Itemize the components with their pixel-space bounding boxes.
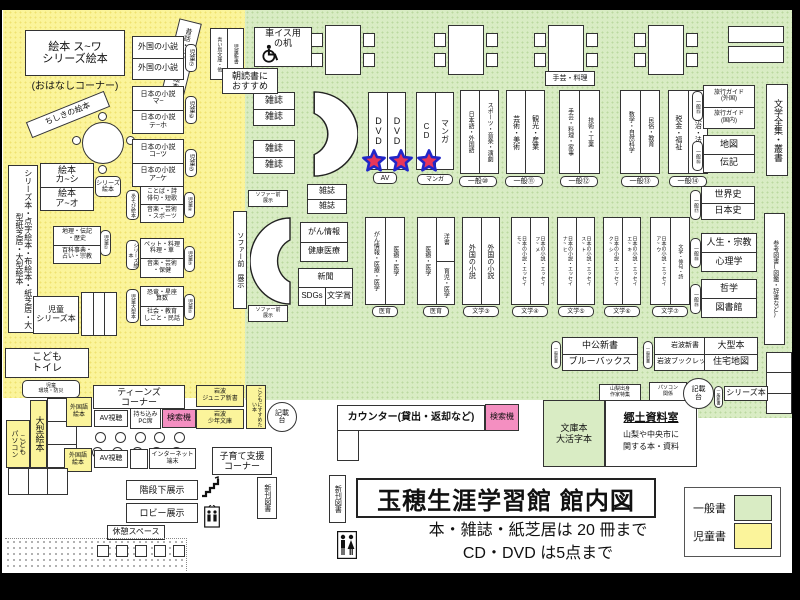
shelf-cell (9, 469, 28, 494)
geography-biography-shelf: 地理・伝記 ・歴史百科事典・ 占い・宗教 (53, 226, 101, 264)
cell: 洋書 (437, 218, 455, 261)
kids-env-tag: 児童 環境・防災 (22, 380, 80, 398)
cell: 芸術・美術 (507, 91, 525, 173)
chair (95, 432, 106, 443)
general-shelf-11: 芸術・美術観光・産業 (506, 90, 545, 174)
morning-reading-box: 朝読書に おすすめ (222, 68, 278, 94)
kids-large-books-tag: 児童大型本 (126, 289, 139, 323)
cell: 日本の小説・エッセイ ア~ウ (651, 218, 670, 304)
shelf-column: 医療・医学 (418, 218, 436, 304)
shelf-column: 手芸・料理・家事 (560, 91, 579, 173)
shelf-row: 音楽・芸術 ・スポーツ (141, 204, 183, 222)
box-label: AV視聴 (95, 451, 127, 467)
cell: 医療・医学 (386, 218, 405, 304)
newspaper-shelf: 新聞SDGs文学賞 (298, 268, 353, 306)
shelf-column: 日本語・外国語 (461, 91, 479, 173)
sofa-front-strip: ソファー前 展示 (233, 211, 247, 309)
kids-toilet: こども トイレ (5, 348, 89, 378)
shelf-row: 心理学 (702, 252, 756, 271)
shelf-row: 絵本 カ~シ (41, 164, 93, 187)
literature-collection-strip: 文学全集・叢書 (766, 84, 788, 176)
cell: 外国の小説 (133, 59, 183, 80)
new-books-strip-2: 新刊図書 (329, 475, 346, 523)
round-table-chair-bottom (98, 165, 107, 174)
cell: 雑誌 (254, 141, 294, 157)
shelf-row: 世界史 (702, 187, 754, 203)
search-terminal-counter: 検索機 (485, 404, 519, 431)
stairs-icon (200, 476, 220, 498)
cell: 日本の小説・エッセイ モ~ (512, 218, 530, 304)
chair (434, 33, 446, 47)
cell: 日本史 (702, 204, 754, 220)
shelf-row: 日本の小説 コ~ツ (133, 140, 183, 163)
cell: 人生・宗教 (702, 234, 756, 252)
chair (363, 53, 375, 67)
legend-label-general: 一般書 (693, 500, 726, 516)
kids-tag-2: 児童② (184, 294, 195, 320)
table (448, 25, 484, 75)
kodomo-susume-strip: こどもにすすめたい本 (246, 385, 266, 429)
shelf-column: 民俗・教育 (640, 91, 660, 173)
shelf-row: 新聞 (299, 269, 352, 287)
legend-row-children: 児童書 (693, 523, 772, 549)
library-floor-map: 昔話・シリーズ絵本絵本 ス~ワ シリーズ絵本(おはなしコーナー)ちしきの絵本外国… (0, 0, 800, 600)
cell: 日本語・外国語 (461, 91, 479, 173)
cell: 絵本 ア~オ (41, 188, 93, 211)
legend-swatch-children (734, 523, 772, 549)
wc-icon (337, 531, 357, 559)
shelf-row: 雑誌 (308, 199, 346, 214)
medical-shelf-1: がん情報・医療・医学医療・医学 (365, 217, 405, 305)
pc-related-box: パソコン 関係 (649, 382, 687, 402)
shelf-row: ことば・詩 俳句・短歌 (141, 187, 183, 204)
cell: 雑誌 (254, 93, 294, 109)
table (648, 25, 684, 75)
bunko-large-print-box: 文庫本 大活字本 (543, 400, 605, 467)
search-terminal-left: 検索機 (162, 409, 196, 428)
kids-tag-3: 児童③ (184, 246, 195, 272)
chair (174, 432, 185, 443)
chair (686, 53, 698, 67)
literature-tag-4: 文学④ (512, 306, 548, 317)
box-label: 岩波 少年文庫 (197, 410, 243, 428)
table-block-sw (8, 468, 68, 495)
shelf-row: 雑誌 (254, 157, 294, 174)
map-biography-shelf: 地図伝記 (703, 135, 755, 173)
shelf-row: 地図 (704, 136, 754, 154)
picturebook-ka-shi-shelf: 絵本 カ~シ絵本 ア~オ (40, 163, 94, 211)
round-table (82, 122, 124, 164)
chair (586, 33, 598, 47)
shelf-row: ブルーバックス (563, 354, 637, 371)
counter: カウンター(貸出・返却など) (337, 405, 485, 431)
cell: 雑誌 (254, 110, 294, 126)
box-label: 朝読書に おすすめ (223, 69, 277, 93)
shelf-row: 日本史 (702, 203, 754, 220)
chuko-shinsho-shelf: 中公新書ブルーバックス (562, 337, 638, 371)
chair (116, 545, 128, 557)
medical-tag-1: 医育 (372, 306, 398, 317)
shelf-cell (767, 393, 791, 413)
box-label: パソコン 関係 (650, 383, 686, 401)
cell: 医療・医学 (418, 218, 436, 304)
crafts-cooking-label: 手芸・料理 (545, 71, 595, 86)
chair (97, 545, 109, 557)
reading-table-2 (434, 25, 496, 73)
box-label: 階段下展示 (127, 481, 197, 499)
cell: 住宅地図 (705, 355, 757, 371)
cell: 哲学 (702, 280, 756, 298)
jnovel-kids-ma-shelf: 日本の小説 マ~日本の小説 テ~ホ (132, 86, 184, 134)
series-ehon-tag-2: シリーズ絵本 (126, 240, 139, 270)
chair (434, 53, 446, 67)
shelf-column: 外国の小説 (481, 218, 500, 304)
star-2 (388, 148, 414, 174)
shelf-column: 日本の小説・エッセイ ク~シ (604, 218, 622, 304)
shelf-column: がん情報・医療・医学 (366, 218, 385, 304)
literature-tag-5: 文学⑤ (558, 306, 594, 317)
literature-tag-7: 文学⑦ (652, 306, 688, 317)
medical-shelf-2: 医療・医学洋書育児・医学 (417, 217, 455, 305)
box-label: 検索機 (486, 405, 518, 430)
sofa-front-tag-top: ソファー前 展示 (248, 190, 288, 207)
stairs-display: 階段下展示 (126, 480, 198, 500)
pc-chairs-row-1 (95, 432, 185, 441)
box-label (338, 431, 358, 460)
lending-rule-av: CD・DVD は5点まで (408, 543, 668, 565)
shelf-cell (82, 293, 93, 335)
chair (311, 33, 323, 47)
shelf-row: 地理・伝記 ・歴史 (54, 227, 100, 245)
round-table-chair-top (98, 112, 107, 121)
shelf-column: 日本の小説・エッセイ ア~ウ (651, 218, 670, 304)
kyodo-heading: 郷土資料室 (606, 401, 696, 425)
shelf-column: 日本の小説・エッセイ ナ~ヒ (558, 218, 576, 304)
reading-table-3 (534, 25, 596, 73)
chair (686, 33, 698, 47)
dinosaur-science-shelf: 恐竜・星座 算数社会・教育 しごと・民話 (140, 286, 184, 326)
shelf-row: ペット・料理 料理・車 (141, 239, 183, 258)
cell: 外国の小説 (463, 218, 481, 304)
kotoba-poetry-shelf: ことば・詩 俳句・短歌音楽・芸術 ・スポーツ (140, 186, 184, 223)
shelf-column: 日本の小説・エッセイ エ~キ (622, 218, 641, 304)
shelf-row: 図書館 (702, 298, 756, 317)
table (325, 25, 361, 75)
lobby-display: ロビー展示 (126, 503, 198, 523)
series-books-label: シリーズ本 (724, 386, 768, 401)
cell: 雑誌 (308, 185, 346, 199)
box-label: AV視聴 (95, 411, 127, 426)
shelf-row: 恐竜・星座 算数 (141, 287, 183, 306)
general-shinsho-tag-3: 一般新書 (714, 386, 723, 408)
legend-label-children: 児童書 (693, 528, 726, 544)
cell: 図書館 (702, 299, 756, 317)
box-label: ソファー前 展示 (249, 191, 287, 206)
lending-rule-books: 本・雑誌・紙芝居は 20 冊まで (408, 520, 668, 542)
shelf-row: 社会・教育 しごと・民話 (141, 306, 183, 326)
box-label (131, 450, 147, 468)
iwanami-shonen-shelf: 岩波 少年文庫 (196, 409, 244, 429)
shelf-row: 健康医療 (301, 242, 347, 262)
kosodate-corner: 子育て支援 コーナー (212, 447, 272, 475)
box-label: 絵本 ス~ワ シリーズ絵本 (26, 31, 124, 75)
cell: 社会・教育 しごと・民話 (141, 307, 183, 326)
cell: ペット・料理 料理・車 (141, 239, 183, 258)
cell: 日本の小説・エッセイ ク~シ (604, 218, 622, 304)
kisaidai-right: 記載 台 (683, 378, 714, 409)
reading-table-4 (634, 25, 696, 73)
new-books-strip-1: 新刊図書 (257, 477, 277, 519)
shelf-row: SDGs文学賞 (299, 287, 352, 306)
shelf-cell (28, 469, 48, 494)
chair (311, 53, 323, 67)
cell: 技術・工業 (580, 91, 599, 173)
life-religion-shelf: 人生・宗教心理学 (701, 233, 757, 272)
internet-terminal: インターネット 端末 (149, 448, 196, 469)
shelf-row: 絵本 ア~オ (41, 187, 93, 211)
ohanashi-corner-label: (おはなしコーナー) (14, 79, 136, 93)
shelf-row: 日本の小説 ア~ケ (133, 163, 183, 187)
asobi-ehon-tag: あそび絵本 (126, 190, 139, 220)
rest-chairs (97, 545, 185, 555)
box-label: ティーンズ コーナー (94, 386, 184, 408)
jnovel-na-shelf: 日本の小説・エッセイ ナ~ヒ日本の小説・エッセイ ス~ト (557, 217, 595, 305)
shelf-row: 旅行ガイド (外国) (704, 86, 754, 107)
general-shelf-10: 日本語・外国語スポーツ・音楽・演劇 (460, 90, 499, 174)
chair (634, 33, 646, 47)
legend: 一般書 児童書 (684, 487, 781, 557)
round-table-chair-left (72, 136, 81, 145)
cell: 文学・俳句・詩 (671, 218, 690, 304)
shelf-row: 伝記 (704, 154, 754, 173)
cell: がん情報・医療・医学 (366, 218, 385, 304)
picturebook-su-wa-shelf: 絵本 ス~ワ シリーズ絵本 (25, 30, 125, 76)
cell: 音楽・芸術 ・スポーツ (141, 205, 183, 222)
shelf-row: 日本の小説 テ~ホ (133, 110, 183, 134)
star-3 (416, 148, 442, 174)
jnovel-kids-ko-shelf: 日本の小説 コ~ツ日本の小説 ア~ケ (132, 139, 184, 187)
world-history-shelf: 世界史日本史 (701, 186, 755, 220)
shelf-column: 日本の小説・エッセイ ス~ト (576, 218, 595, 304)
kyodo-body: 山梨や中央市に 関する本・資料 (606, 425, 696, 453)
kids-tag-5: 児童⑤ (185, 149, 197, 177)
magazines-shelf-1: 雑誌雑誌 (253, 92, 295, 126)
box-label: インターネット 端末 (150, 449, 195, 468)
shelf-row: 住宅地図 (705, 354, 757, 371)
side-table-1 (728, 26, 784, 43)
cell: 恐竜・星座 算数 (141, 287, 183, 306)
cell: 日本の小説・エッセイ エ~キ (623, 218, 641, 304)
general-tag-15: 一般⑮ (692, 91, 703, 121)
general-tag-13: 一般⑬ (621, 176, 659, 187)
cell: 雑誌 (254, 158, 294, 174)
box-label: ロビー展示 (127, 504, 197, 522)
cell: 日本の小説 コ~ツ (133, 140, 183, 163)
av-booth-2: AV視聴 (94, 450, 128, 468)
cell: 旅行ガイド (国内) (704, 108, 754, 129)
jnovel-a-shelf: 日本の小説・エッセイ ア~ウ文学・俳句・詩 (650, 217, 690, 305)
cell: 日本の小説 マ~ (133, 87, 183, 110)
box-label: 山梨出身 作家特集 (600, 385, 640, 401)
chair (135, 432, 146, 443)
box-label: 外国語 絵本 (65, 449, 91, 471)
shelf-row: 百科事典・ 占い・宗教 (54, 245, 100, 264)
box-label: 岩波 ジュニア新書 (197, 386, 243, 406)
kids-series-box: 児童 シリーズ本 (33, 296, 79, 334)
chair (154, 545, 166, 557)
cell: 百科事典・ 占い・宗教 (54, 246, 100, 264)
chair (534, 53, 546, 67)
shelf-row: 音楽・芸術 ・保健 (141, 258, 183, 278)
shelf-column: 数学・自然科学 (621, 91, 640, 173)
cell: 外国の小説 (482, 218, 500, 304)
kids-tag-1: 児童① (100, 230, 111, 256)
foreign-novels-kids-shelf: 外国の小説外国の小説 (132, 36, 184, 80)
box-label: ソファー前 展示 (249, 306, 287, 321)
cell: 旅行ガイド (外国) (704, 86, 754, 107)
blank-booth (130, 449, 148, 469)
kyodo-shiryo-room: 郷土資料室山梨や中央市に 関する本・資料 (605, 400, 697, 467)
table (548, 25, 584, 75)
shelf-row: 雑誌 (254, 109, 294, 126)
shelf-row: 人生・宗教 (702, 234, 756, 252)
pet-cooking-shelf: ペット・料理 料理・車音楽・芸術 ・保健 (140, 238, 184, 278)
philosophy-shelf: 哲学図書館 (701, 279, 757, 318)
travel-guide-shelf: 旅行ガイド (外国)旅行ガイド (国内) (703, 85, 755, 129)
magazines-shelf-3: 雑誌雑誌 (307, 184, 347, 214)
shelf-column: 技術・工業 (579, 91, 599, 173)
elevator-icon (204, 505, 220, 528)
cell: ことば・詩 俳句・短歌 (141, 187, 183, 204)
foreign-picturebook-tag-2: 外国語 絵本 (64, 448, 92, 472)
chair (486, 53, 498, 67)
box-label (729, 47, 783, 62)
box-label: 検索機 (163, 410, 195, 427)
shelf-column: スポーツ・音楽・演劇 (479, 91, 498, 173)
map-title: 玉穂生涯学習館 館内図 (356, 478, 656, 518)
general-tag-10: 一般⑩ (459, 176, 497, 187)
box-label: 手芸・料理 (546, 72, 594, 85)
general-tag-19: 一般⑲ (690, 284, 701, 314)
magazines-shelf-2: 雑誌雑誌 (253, 140, 295, 174)
general-shelf-13: 数学・自然科学民俗・教育 (620, 90, 660, 174)
right-edge-shelves (766, 352, 792, 414)
chair (173, 545, 185, 557)
cell: 手芸・料理・家事 (560, 91, 579, 173)
cell: 文学賞 (325, 288, 352, 306)
cell: 日本の小説・エッセイ ナ~ヒ (558, 218, 576, 304)
shelf-cell (47, 469, 67, 494)
shelf-row: 雑誌 (308, 185, 346, 199)
shelf-column: 芸術・美術 (507, 91, 525, 173)
cell: 育児・医学 (437, 261, 455, 305)
kids-tag-6: 児童⑥ (185, 96, 197, 124)
av-booth-1: AV視聴 (94, 410, 128, 427)
medical-tag-2: 医育 (423, 306, 449, 317)
sofa-crescent-2 (250, 214, 292, 308)
chair (586, 53, 598, 67)
foreign-picturebook-tag-1: 外国語 絵本 (66, 397, 92, 427)
shelf-row: 雑誌 (254, 141, 294, 157)
cell: 地図 (704, 136, 754, 154)
cell: 大型本 (705, 338, 757, 354)
cell: 音楽・芸術 ・保健 (141, 259, 183, 278)
cell: 外国の小説 (133, 37, 183, 58)
series-ehon-tag-1: シリーズ 絵本 (95, 176, 121, 197)
cell: 民俗・教育 (641, 91, 660, 173)
literature-tag-3: 文学③ (463, 306, 499, 317)
shelf-column: 医療・医学 (385, 218, 405, 304)
kisaidai-left: 記載 台 (267, 402, 297, 432)
shelf-row: 外国の小説 (133, 58, 183, 80)
general-shelf-12: 手芸・料理・家事技術・工業 (559, 90, 600, 174)
legend-row-general: 一般書 (693, 495, 772, 521)
general-tag-17: 一般⑰ (690, 190, 701, 220)
chair (486, 33, 498, 47)
cell: 日本の小説・エッセイ ス~ト (577, 218, 595, 304)
reference-books-strip: 参考図書(図鑑・辞書など) (764, 213, 785, 345)
box-label: 児童 シリーズ本 (34, 297, 78, 333)
iwanami-junior-shelf: 岩波 ジュニア新書 (196, 385, 244, 407)
shelf-column: 文学・俳句・詩 (670, 218, 690, 304)
star-1 (361, 148, 387, 174)
cell: 日本の小説 ア~ケ (133, 164, 183, 187)
cell: ブルーバックス (563, 355, 637, 371)
jnovel-mo-shelf: 日本の小説・エッセイ モ~日本の小説・エッセイ フ~メ (511, 217, 549, 305)
manga-tag: マンガ (417, 174, 453, 185)
general-tag-12: 一般⑫ (560, 176, 598, 187)
shelf-column: 日本の小説・エッセイ モ~ (512, 218, 530, 304)
general-tag-11: 一般⑪ (505, 176, 543, 187)
box-label: シリーズ本 (725, 387, 767, 400)
sofa-crescent-1 (312, 88, 358, 180)
foreign-novels-shelf: 外国の小説外国の小説 (462, 217, 500, 305)
shelf-row: 中公新書 (563, 338, 637, 354)
shelf-cell (767, 353, 791, 372)
large-picturebook-strip: 大型絵本 (30, 400, 47, 468)
general-tag-18: 一般⑱ (690, 238, 701, 268)
kids-shelf-bars (81, 292, 117, 336)
shelf-column: 観光・産業 (525, 91, 544, 173)
counter-leg (337, 430, 359, 461)
cell: 世界史 (702, 187, 754, 203)
shelf-column: 税金・福祉 (669, 91, 688, 173)
chair (135, 545, 147, 557)
shelf-column: 外国の小説 (463, 218, 481, 304)
jnovel-ku-shelf: 日本の小説・エッセイ ク~シ日本の小説・エッセイ エ~キ (603, 217, 641, 305)
cell: 心理学 (702, 253, 756, 271)
shelf-row: 日本の小説 マ~ (133, 87, 183, 110)
cell: 雑誌 (308, 200, 346, 214)
chair (115, 432, 126, 443)
teens-corner: ティーンズ コーナー (93, 385, 185, 409)
chair (534, 33, 546, 47)
shelf-row: がん情報 (301, 223, 347, 242)
reading-table-1 (311, 25, 373, 73)
box-label: 持ち込み PC席 (131, 409, 160, 428)
cell: 伝記 (704, 155, 754, 173)
chair (634, 53, 646, 67)
cell: 日本の小説 テ~ホ (133, 111, 183, 134)
shelf-row: 大型本 (705, 338, 757, 354)
byo-pc-seat: 持ち込み PC席 (130, 408, 161, 429)
cell: 新聞 (299, 269, 352, 287)
wheelchair-icon (260, 44, 280, 64)
shelf-row: 外国の小説 (133, 37, 183, 58)
kids-tag-7: 児童⑦ (185, 44, 197, 72)
cancer-info-shelf: がん情報健康医療 (300, 222, 348, 262)
box-label: 子育て支援 コーナー (213, 448, 271, 474)
